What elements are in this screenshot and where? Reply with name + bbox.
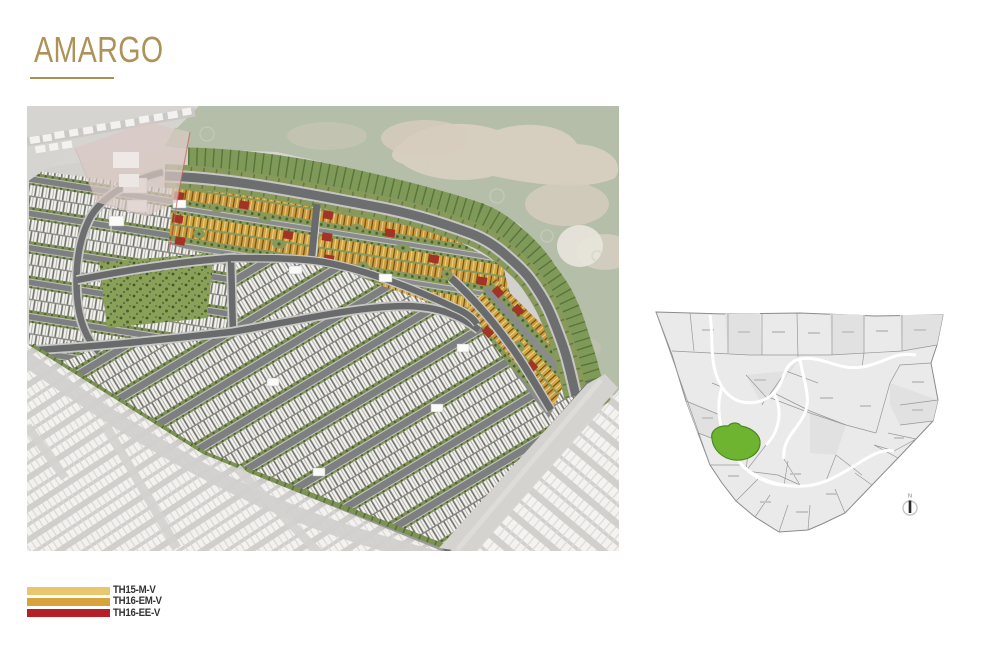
svg-text:N: N (908, 494, 912, 500)
